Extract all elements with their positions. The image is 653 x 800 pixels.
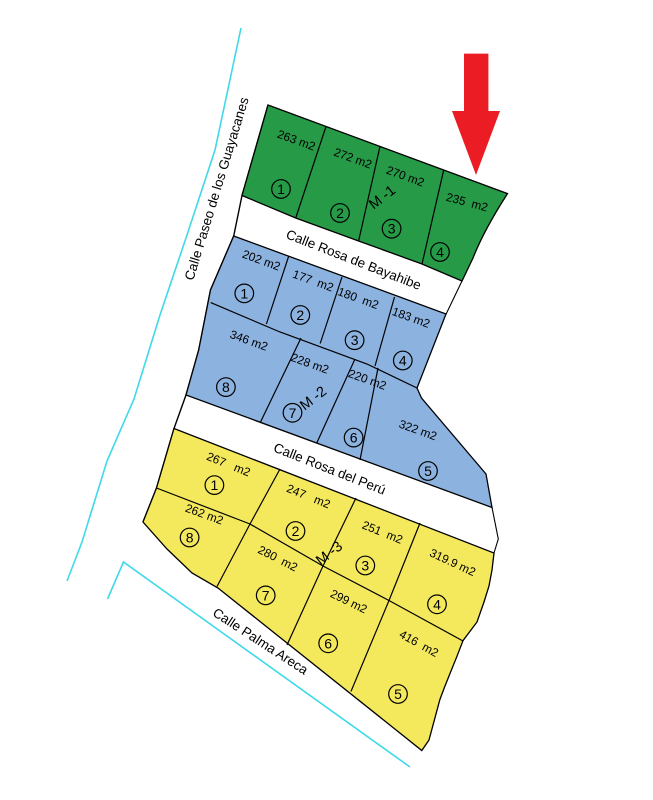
svg-text:5: 5: [424, 463, 432, 479]
svg-text:8: 8: [222, 379, 230, 395]
svg-text:3: 3: [361, 558, 369, 574]
svg-text:1: 1: [277, 181, 285, 197]
svg-text:7: 7: [289, 405, 297, 421]
svg-text:2: 2: [296, 307, 304, 323]
svg-text:4: 4: [399, 353, 407, 369]
svg-text:6: 6: [324, 635, 332, 651]
svg-text:6: 6: [350, 430, 358, 446]
svg-text:3: 3: [351, 332, 359, 348]
svg-text:8: 8: [186, 530, 194, 546]
svg-text:4: 4: [433, 596, 441, 612]
svg-text:5: 5: [394, 686, 402, 702]
svg-text:2: 2: [292, 523, 300, 539]
svg-text:1: 1: [240, 285, 248, 301]
svg-text:3: 3: [388, 221, 396, 237]
svg-text:2: 2: [336, 205, 344, 221]
svg-text:4: 4: [436, 244, 444, 260]
svg-text:7: 7: [262, 587, 270, 603]
svg-text:1: 1: [211, 477, 219, 493]
